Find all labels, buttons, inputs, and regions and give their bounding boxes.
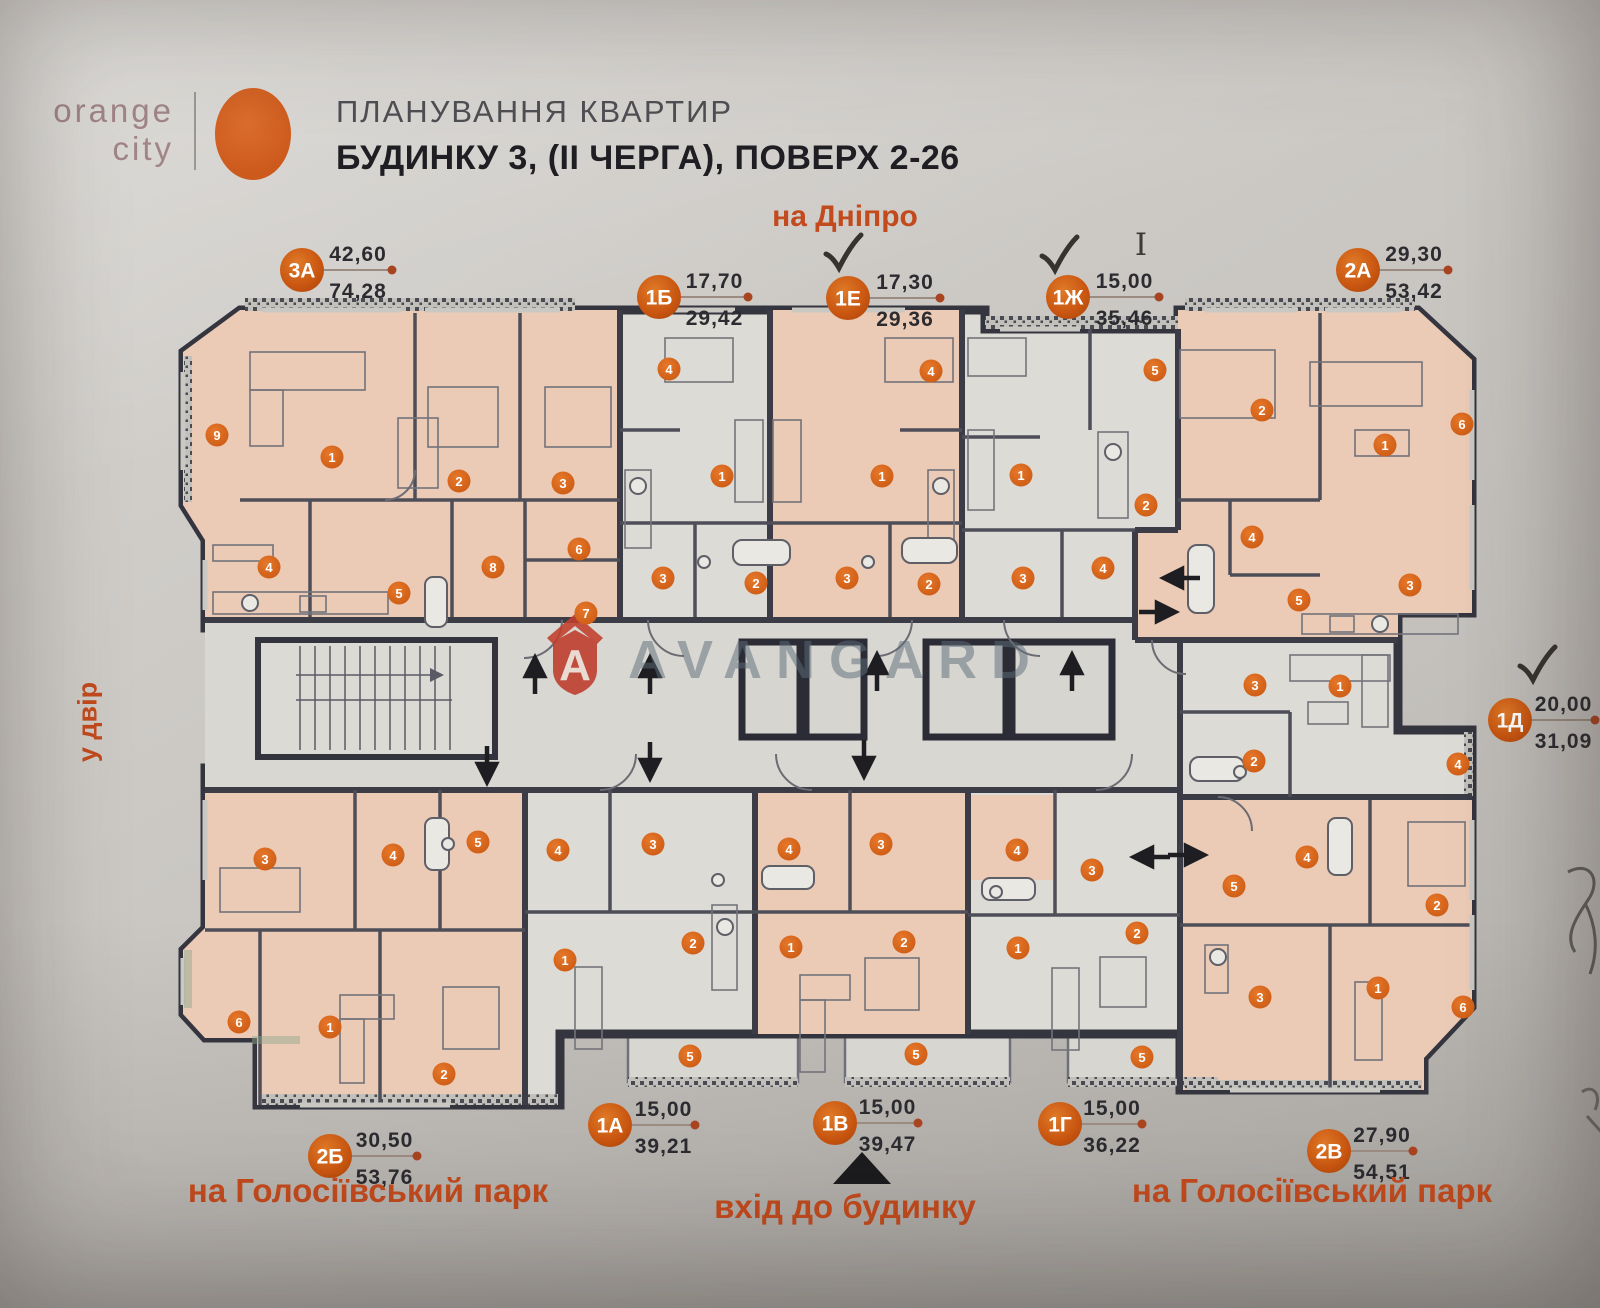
apartment-area-top: 15,00	[635, 1098, 693, 1121]
logo-line1: orange	[36, 92, 174, 130]
room-number: 4	[785, 842, 793, 857]
leader-dot	[388, 266, 397, 275]
room-number: 8	[489, 560, 496, 575]
apartment-id: 1Г	[1048, 1114, 1072, 1137]
room-number: 6	[1459, 1000, 1466, 1015]
room-number: 1	[787, 940, 794, 955]
room-number: 1	[328, 450, 335, 465]
room-number: 1	[1374, 981, 1381, 996]
room-number: 2	[455, 474, 462, 489]
logo-text: orange city	[36, 92, 174, 168]
room-number: 2	[1258, 403, 1265, 418]
room-number: 1	[561, 953, 568, 968]
room-number: 5	[912, 1047, 919, 1062]
logo-divider	[194, 92, 196, 170]
room-number: 2	[1133, 926, 1140, 941]
logo-line2: city	[36, 130, 174, 168]
leader-dot	[413, 1152, 422, 1161]
room-number: 2	[1250, 754, 1257, 769]
room-number: 5	[686, 1049, 693, 1064]
title-line1: ПЛАНУВАННЯ КВАРТИР	[336, 94, 960, 130]
page-title: ПЛАНУВАННЯ КВАРТИР БУДИНКУ 3, (II ЧЕРГА)…	[336, 94, 960, 178]
leader-dot	[1409, 1147, 1418, 1156]
room-number: 2	[1433, 898, 1440, 913]
floor-plan: A AVANGARD 9123485673А42,6074,2841321Б17…	[0, 0, 1600, 1308]
room-number: 5	[1295, 593, 1302, 608]
apartment-id: 1Ж	[1053, 287, 1085, 310]
room-number: 5	[1138, 1050, 1145, 1065]
room-number: 6	[575, 542, 582, 557]
room-number: 9	[213, 428, 220, 443]
room-number: 4	[1303, 850, 1311, 865]
apartment-area-bottom: 35,46	[1096, 307, 1154, 330]
room-number: 7	[582, 606, 589, 621]
apartment-id: 2Б	[317, 1146, 344, 1169]
room-number: 3	[649, 837, 656, 852]
room-number: 3	[659, 571, 666, 586]
stairwell	[258, 640, 495, 757]
apartment-area-top: 29,30	[1385, 243, 1443, 266]
room-number: 4	[927, 364, 935, 379]
floor-plan-photo: orange city ПЛАНУВАННЯ КВАРТИР БУДИНКУ 3…	[0, 0, 1600, 1308]
apartment-area-top: 42,60	[329, 243, 387, 266]
apartment-area-bottom: 31,09	[1535, 730, 1593, 753]
room-number: 5	[474, 835, 481, 850]
apartment-id: 1А	[597, 1115, 624, 1138]
apartment-id: 1В	[822, 1113, 849, 1136]
room-number: 1	[1381, 438, 1388, 453]
apartment-area-bottom: 39,21	[635, 1135, 693, 1158]
apartment-area-top: 30,50	[356, 1129, 414, 1152]
apartment-area-bottom: 36,22	[1083, 1134, 1141, 1157]
room-number: 1	[1014, 941, 1021, 956]
watermark-shield-letter: A	[559, 641, 591, 690]
room-number: 3	[1251, 678, 1258, 693]
entrance-label: вхід до будинку	[714, 1188, 976, 1226]
leader-dot	[744, 293, 753, 302]
orange-circle-logo-icon	[215, 88, 291, 180]
room-number: 2	[440, 1067, 447, 1082]
room-number: 4	[1248, 530, 1256, 545]
room-number: 3	[1019, 571, 1026, 586]
apartment-id: 1Е	[835, 288, 861, 311]
leader-dot	[1444, 266, 1453, 275]
room-number: 3	[877, 837, 884, 852]
apartment-area-bottom: 29,36	[876, 308, 934, 331]
apartment-area-top: 17,70	[686, 270, 744, 293]
room-number: 3	[843, 571, 850, 586]
handwritten-scribble-right	[1568, 868, 1595, 974]
handwritten-checkmark	[1520, 647, 1555, 680]
room-number: 2	[900, 935, 907, 950]
room-number: 4	[554, 843, 562, 858]
watermark-text: AVANGARD	[628, 630, 1044, 690]
room-number: 1	[878, 469, 885, 484]
handwritten-checkmark	[826, 235, 861, 268]
room-number: 2	[689, 936, 696, 951]
room-number: 1	[1336, 679, 1343, 694]
direction-label-dnipro: на Дніпро	[772, 200, 918, 234]
room-number: 4	[1454, 757, 1462, 772]
apartment-area-top: 20,00	[1535, 693, 1593, 716]
leader-dot	[1155, 293, 1164, 302]
apartment-area-bottom: 29,42	[686, 307, 744, 330]
title-line2: БУДИНКУ 3, (II ЧЕРГА), ПОВЕРХ 2-26	[336, 139, 960, 178]
apartment-area-top: 27,90	[1353, 1124, 1411, 1147]
entrance-triangle-icon	[833, 1152, 891, 1184]
apartment-area-top: 15,00	[859, 1096, 917, 1119]
apartment-area-top: 15,00	[1083, 1097, 1141, 1120]
room-number: 5	[1151, 363, 1158, 378]
room-number: 3	[1088, 863, 1095, 878]
room-number: 6	[1458, 417, 1465, 432]
room-number: 1	[326, 1020, 333, 1035]
room-number: 3	[1406, 578, 1413, 593]
leader-dot	[914, 1119, 923, 1128]
leader-dot	[1138, 1120, 1147, 1129]
room-number: 2	[925, 577, 932, 592]
apartment-id: 1Д	[1497, 710, 1524, 733]
direction-label-yard: у двір	[73, 682, 104, 762]
apartment-id: 2В	[1316, 1141, 1343, 1164]
apartment-area-bottom: 74,28	[329, 280, 387, 303]
room-number: 1	[1017, 468, 1024, 483]
direction-label-park-right: на Голосіївський парк	[1132, 1172, 1492, 1210]
room-number: 3	[1256, 990, 1263, 1005]
apartment-area-bottom: 39,47	[859, 1133, 917, 1156]
room-number: 2	[752, 576, 759, 591]
handwritten-scribble-corner	[1582, 1089, 1600, 1134]
apartment-id: 2А	[1345, 260, 1372, 283]
room-number: 1	[718, 469, 725, 484]
room-number: 6	[235, 1015, 242, 1030]
direction-label-park-left: на Голосіївський парк	[188, 1172, 548, 1210]
room-number: 4	[1099, 561, 1107, 576]
room-number: 3	[559, 476, 566, 491]
apartment-id: 1Б	[646, 287, 673, 310]
room-number: 2	[1142, 498, 1149, 513]
apartment-area-top: 17,30	[876, 271, 934, 294]
room-number: 4	[389, 848, 397, 863]
leader-dot	[936, 294, 945, 303]
apartment-area-bottom: 53,42	[1385, 280, 1443, 303]
room-number: 4	[1013, 843, 1021, 858]
leader-dot	[691, 1121, 700, 1130]
room-number: 4	[665, 362, 673, 377]
room-number: 5	[395, 586, 402, 601]
room-number: 4	[265, 560, 273, 575]
handwritten-checkmark	[1042, 237, 1077, 270]
apartment-id: 3А	[289, 260, 316, 283]
leader-dot	[1591, 716, 1600, 725]
handwritten-mark: I	[1135, 227, 1147, 263]
apartment-area-top: 15,00	[1096, 270, 1154, 293]
room-number: 5	[1230, 879, 1237, 894]
room-number: 3	[261, 852, 268, 867]
